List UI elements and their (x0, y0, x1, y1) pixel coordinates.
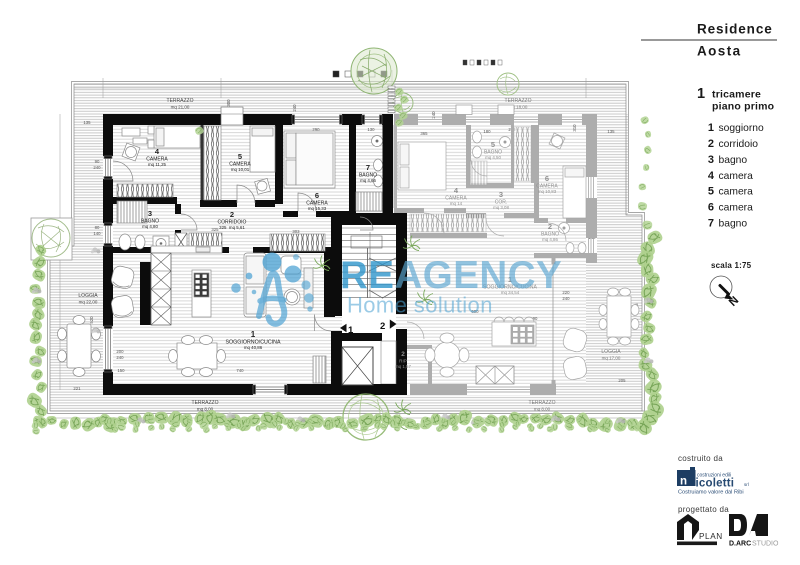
svg-text:7: 7 (708, 217, 714, 229)
svg-text:3: 3 (499, 190, 503, 199)
svg-text:240: 240 (562, 296, 570, 301)
svg-text:mq 3,08: mq 3,08 (493, 205, 509, 210)
svg-text:2: 2 (708, 138, 714, 150)
svg-text:220: 220 (562, 290, 570, 295)
svg-text:325 mq 5,61: 325 mq 5,61 (219, 225, 245, 230)
svg-text:mq 10,83: mq 10,83 (538, 189, 557, 194)
svg-text:mq 22,00: mq 22,00 (79, 300, 98, 305)
svg-text:LOGGIA: LOGGIA (78, 293, 98, 299)
svg-text:135: 135 (83, 120, 91, 125)
svg-text:camera: camera (719, 171, 754, 182)
svg-text:D.ARC: D.ARC (729, 541, 751, 548)
svg-text:7: 7 (366, 163, 370, 172)
svg-text:REAGENCY: REAGENCY (340, 254, 562, 297)
svg-text:camera: camera (719, 203, 754, 214)
svg-text:2: 2 (380, 321, 385, 332)
svg-text:TERRAZZO: TERRAZZO (192, 400, 219, 406)
svg-text:Home solution: Home solution (347, 293, 493, 318)
svg-text:mq 4,50: mq 4,50 (485, 155, 501, 160)
svg-text:205: 205 (618, 378, 626, 383)
svg-text:240: 240 (116, 355, 124, 360)
svg-text:325: 325 (211, 227, 219, 232)
svg-text:6: 6 (708, 202, 714, 214)
svg-text:soggiorno: soggiorno (719, 123, 764, 134)
svg-text:Residence: Residence (697, 22, 773, 37)
svg-text:PLAN: PLAN (699, 532, 723, 541)
svg-text:mq 14: mq 14 (450, 201, 463, 206)
svg-text:740: 740 (236, 368, 244, 373)
svg-text:6: 6 (315, 191, 319, 200)
svg-text:TERRAZZO: TERRAZZO (529, 400, 556, 406)
svg-text:240: 240 (431, 111, 436, 119)
svg-text:3: 3 (708, 154, 714, 166)
svg-text:80: 80 (95, 225, 100, 230)
svg-text:310: 310 (572, 124, 577, 132)
svg-text:tricamere: tricamere (712, 89, 761, 101)
svg-text:90: 90 (95, 159, 100, 164)
svg-text:240: 240 (292, 104, 297, 112)
svg-text:303: 303 (292, 229, 300, 234)
svg-text:mq 8,00: mq 8,00 (534, 407, 551, 412)
svg-text:mq 17,00: mq 17,00 (602, 356, 621, 361)
svg-text:mq 11,25: mq 11,25 (148, 162, 167, 167)
svg-text:5: 5 (238, 152, 242, 161)
svg-text:bagno: bagno (719, 218, 748, 229)
svg-text:130: 130 (367, 127, 375, 132)
svg-text:TERRAZZO: TERRAZZO (167, 98, 194, 104)
svg-text:piano primo: piano primo (712, 101, 774, 113)
svg-text:mq 21,00: mq 21,00 (171, 105, 190, 110)
svg-text:180: 180 (483, 129, 491, 134)
svg-text:240: 240 (93, 165, 101, 170)
svg-text:mq 40,86: mq 40,86 (244, 345, 263, 350)
svg-text:Costruiamo valore dal Ribi: Costruiamo valore dal Ribi (678, 490, 744, 496)
svg-text:1: 1 (708, 122, 714, 134)
svg-text:2: 2 (230, 210, 234, 219)
svg-text:5: 5 (708, 186, 714, 198)
svg-text:icoletti: icoletti (696, 478, 735, 490)
svg-text:mq 1,57: mq 1,57 (395, 364, 411, 369)
svg-text:LOGGIA: LOGGIA (601, 349, 621, 355)
svg-text:3: 3 (148, 209, 152, 218)
svg-text:2: 2 (548, 222, 552, 231)
svg-text:140: 140 (93, 231, 101, 236)
svg-text:costruito da: costruito da (678, 454, 723, 463)
svg-text:135: 135 (607, 129, 615, 134)
svg-text:6: 6 (545, 174, 549, 183)
svg-text:n: n (680, 476, 687, 488)
svg-text:STUDIO: STUDIO (752, 541, 779, 548)
svg-text:300: 300 (226, 99, 231, 107)
svg-text:RIP: RIP (399, 359, 407, 364)
svg-text:1: 1 (697, 86, 705, 102)
svg-text:TERRAZZO: TERRAZZO (505, 98, 532, 104)
svg-text:1: 1 (251, 330, 256, 339)
svg-text:150: 150 (117, 368, 125, 373)
svg-text:camera: camera (719, 187, 754, 198)
svg-text:200: 200 (116, 349, 124, 354)
svg-text:bagno: bagno (719, 155, 748, 166)
svg-text:scala 1:75: scala 1:75 (711, 261, 752, 270)
svg-text:365: 365 (420, 131, 428, 136)
svg-text:Aosta: Aosta (697, 44, 742, 59)
svg-text:mq 10,01: mq 10,01 (231, 167, 250, 172)
svg-text:mq 4,80: mq 4,80 (142, 224, 158, 229)
svg-text:5: 5 (491, 140, 495, 149)
svg-text:progettato da: progettato da (678, 505, 729, 514)
svg-text:221: 221 (73, 386, 81, 391)
svg-text:mq 4,66: mq 4,66 (360, 178, 376, 183)
svg-text:4: 4 (708, 170, 715, 182)
svg-text:2: 2 (401, 351, 405, 358)
svg-text:mq 15,33: mq 15,33 (308, 206, 327, 211)
svg-text:corridoio: corridoio (719, 139, 759, 150)
svg-text:520: 520 (89, 316, 94, 324)
svg-text:srl: srl (744, 482, 749, 487)
svg-text:mq 4,86: mq 4,86 (542, 237, 558, 242)
